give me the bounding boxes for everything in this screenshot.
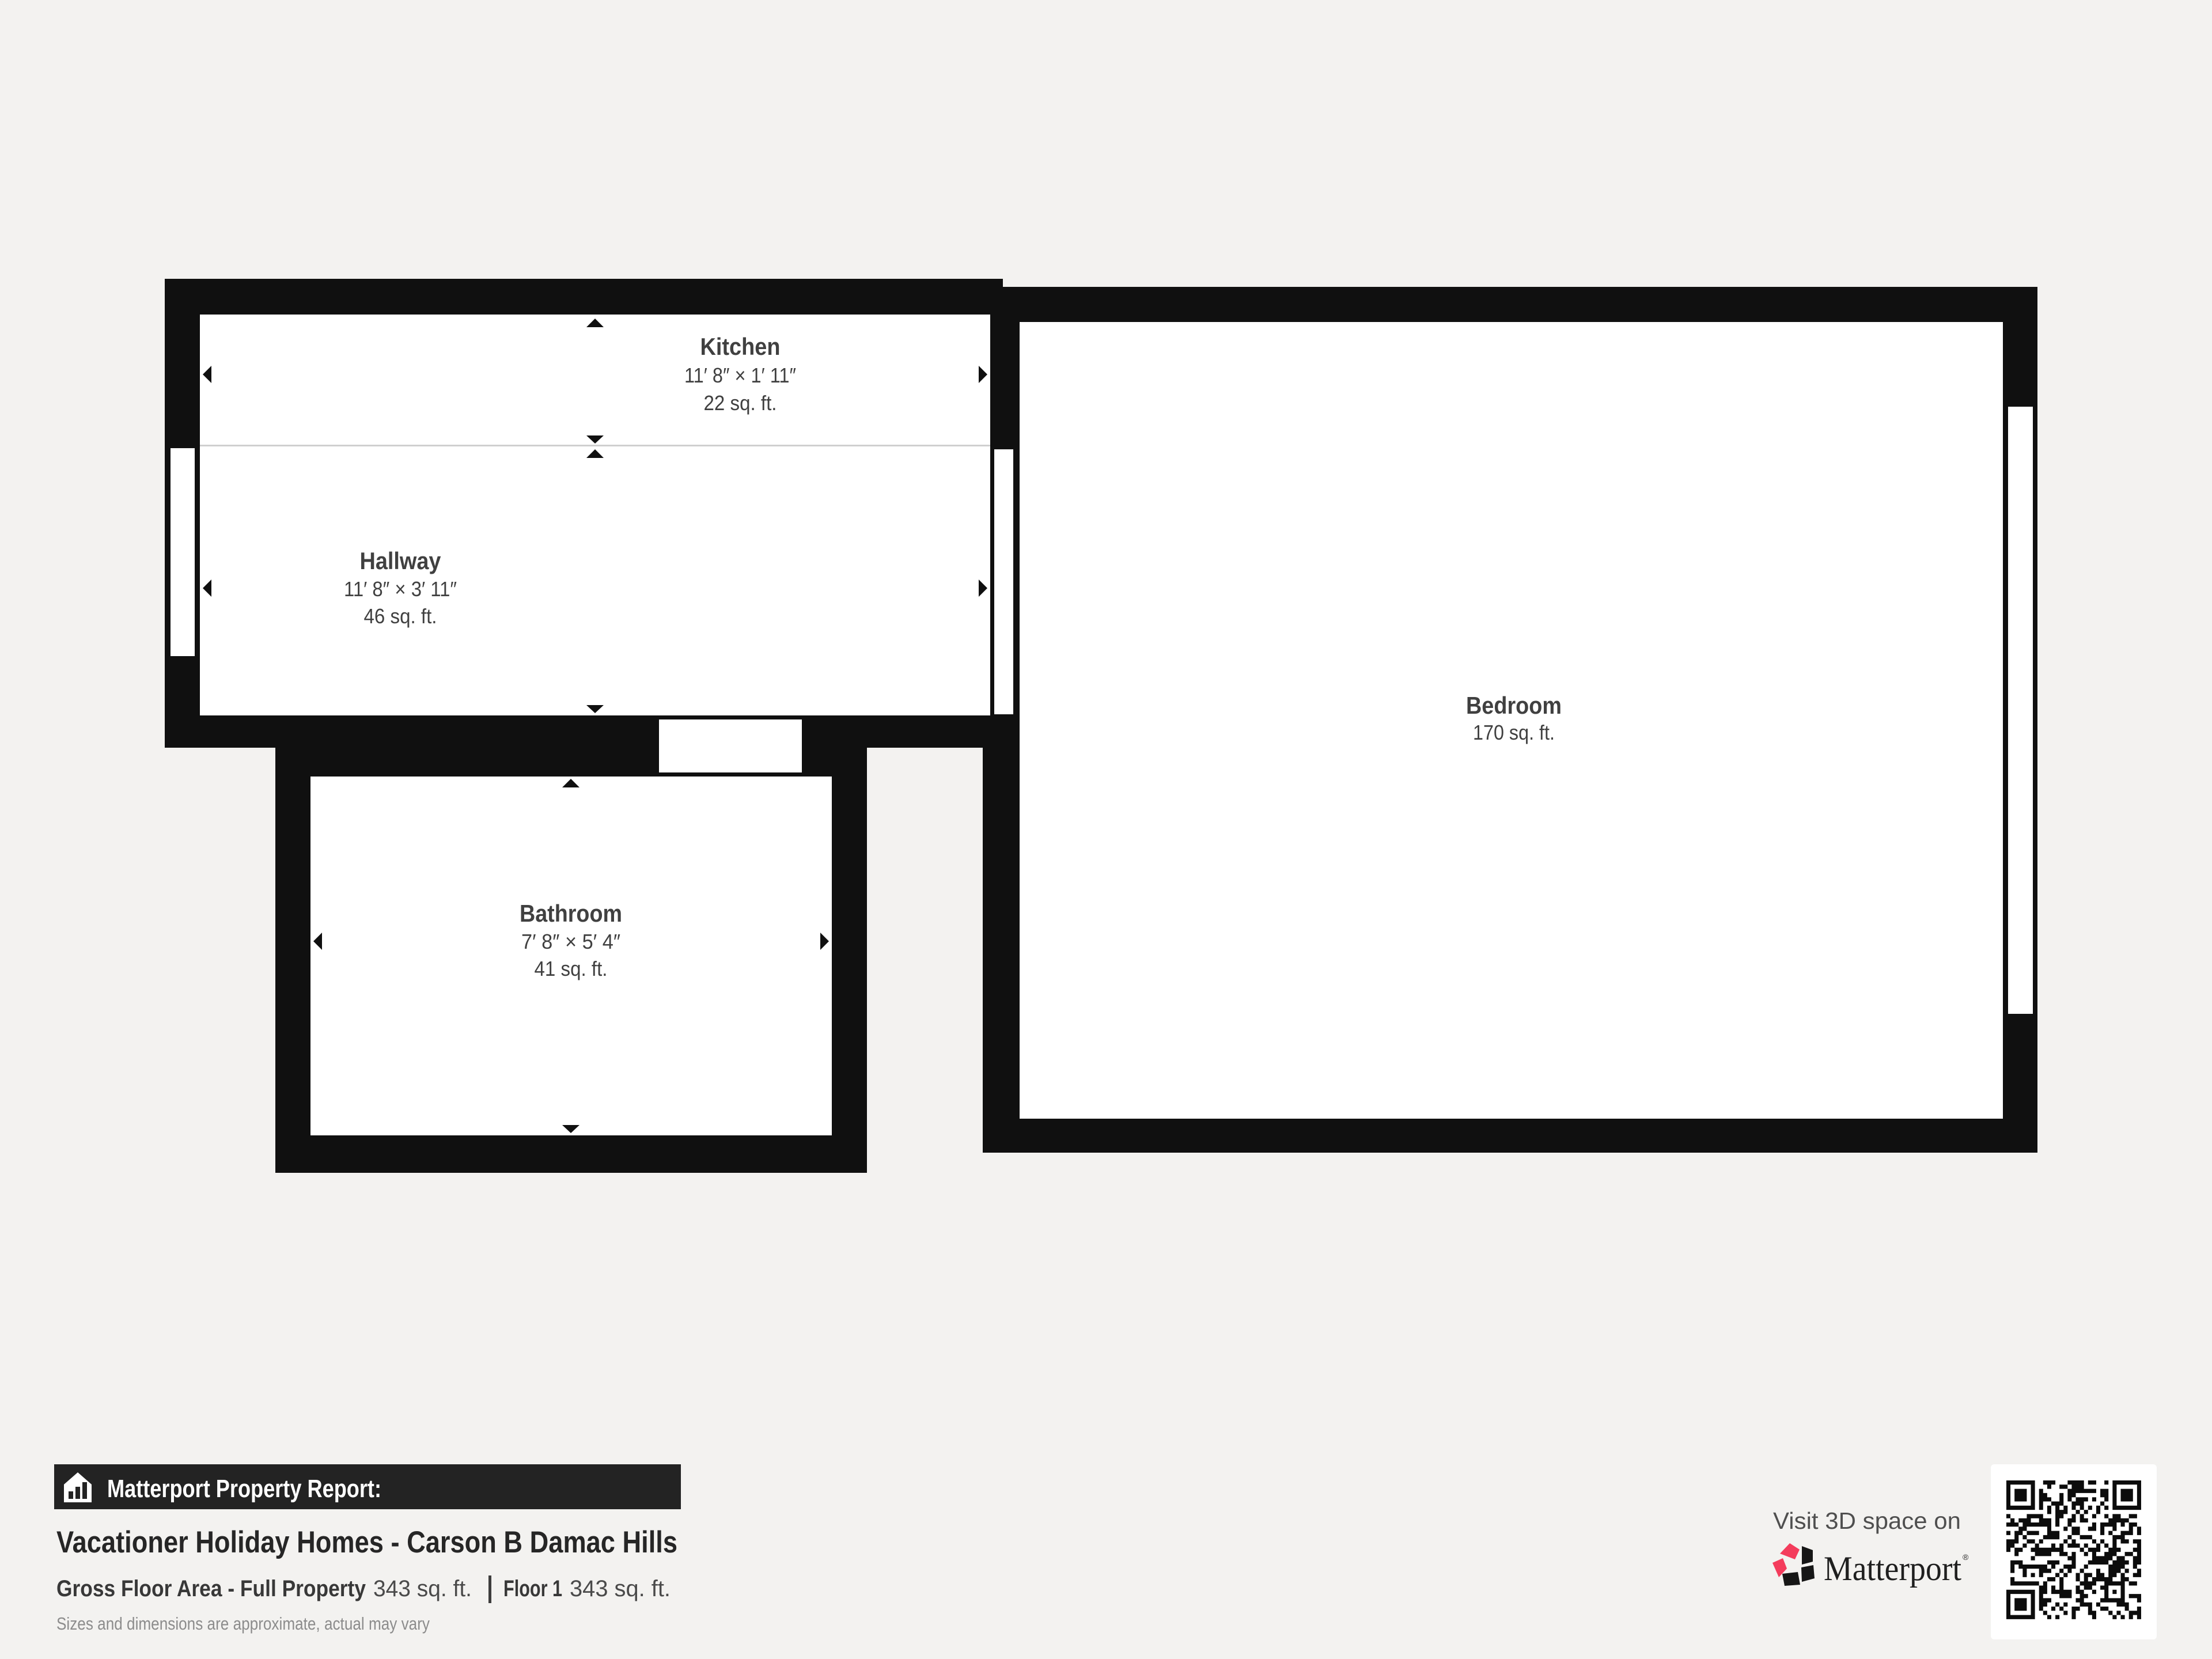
svg-text:11′ 8″ × 1′ 11″: 11′ 8″ × 1′ 11″ — [684, 363, 796, 387]
svg-text:Matterport Property Report:: Matterport Property Report: — [107, 1475, 381, 1503]
svg-text:46 sq. ft.: 46 sq. ft. — [364, 604, 437, 628]
svg-text:343 sq. ft.: 343 sq. ft. — [570, 1576, 671, 1601]
svg-text:Visit 3D space on: Visit 3D space on — [1773, 1508, 1961, 1534]
svg-text:Kitchen: Kitchen — [700, 333, 781, 360]
svg-text:22 sq. ft.: 22 sq. ft. — [704, 391, 777, 415]
svg-text:Floor 1: Floor 1 — [503, 1576, 562, 1601]
svg-text:Gross Floor Area - Full Proper: Gross Floor Area - Full Property — [56, 1576, 366, 1601]
svg-text:Hallway: Hallway — [360, 547, 442, 574]
svg-text:®: ® — [1963, 1552, 1969, 1562]
svg-text:Bathroom: Bathroom — [520, 900, 622, 927]
svg-text:343 sq. ft.: 343 sq. ft. — [373, 1576, 472, 1601]
svg-text:170 sq. ft.: 170 sq. ft. — [1473, 721, 1555, 744]
svg-text:Sizes and dimensions are appro: Sizes and dimensions are approximate, ac… — [56, 1613, 430, 1634]
svg-text:Matterport: Matterport — [1824, 1550, 1961, 1588]
svg-text:Bedroom: Bedroom — [1466, 692, 1562, 719]
svg-text:41 sq. ft.: 41 sq. ft. — [535, 957, 608, 980]
svg-text:Vacationer Holiday Homes - Car: Vacationer Holiday Homes - Carson B Dama… — [56, 1525, 677, 1559]
svg-text:7′ 8″ × 5′ 4″: 7′ 8″ × 5′ 4″ — [521, 930, 620, 953]
svg-text:11′ 8″ × 3′ 11″: 11′ 8″ × 3′ 11″ — [344, 577, 457, 601]
